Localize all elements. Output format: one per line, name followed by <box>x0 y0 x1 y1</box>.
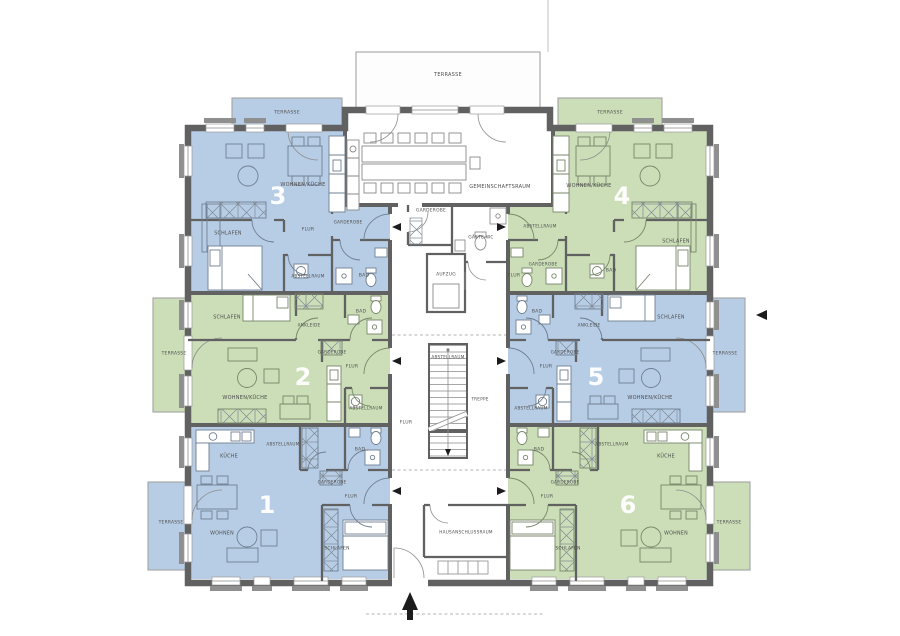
apartment-number: 4 <box>614 182 631 210</box>
room-label: FLUR <box>345 494 358 500</box>
room-label: FLUR <box>541 494 554 500</box>
room-label: SCHLAFEN <box>662 239 690 245</box>
floor-plan-page: 123456 TERRASSETERRASSETERRASSETERRASSET… <box>0 0 900 636</box>
room-label: BAD <box>359 273 370 279</box>
entrance-opening <box>392 577 428 588</box>
room-label: BAD <box>356 309 367 315</box>
room-label: WOHNEN/KÜCHE <box>222 394 267 401</box>
room-label: GARDEROBE <box>334 220 363 225</box>
room-label: GARDEROBE <box>416 208 446 214</box>
staircase <box>429 344 467 458</box>
room-label: TERRASSE <box>433 72 462 78</box>
room-label: BAD <box>355 447 366 453</box>
room-label: GARDEROBE <box>551 480 580 485</box>
room-label: HAUSANSCHLUSSRAUM <box>439 530 493 535</box>
apartment-number: 1 <box>259 491 276 519</box>
room-label: TERRASSE <box>273 110 300 116</box>
room-label: WOHNEN <box>210 531 234 537</box>
room-label: ANKLEIDE <box>578 323 601 328</box>
room-label: TERRASSE <box>716 520 742 526</box>
apartment-number: 6 <box>620 491 637 519</box>
room-label: GARDEROBE <box>318 350 347 355</box>
terrace-top-center <box>356 52 540 110</box>
room-label: FLUR <box>540 364 553 370</box>
room-label: FLUR <box>302 227 315 233</box>
floor-plan-drawing: 123456 TERRASSETERRASSETERRASSETERRASSET… <box>0 0 900 636</box>
apartment-number: 5 <box>588 363 605 391</box>
room-label: FLUR <box>400 420 413 426</box>
room-label: ABSTELLRAUM <box>349 406 382 411</box>
room-label: WOHNEN <box>664 531 688 537</box>
room-label: WOHNEN/KÜCHE <box>627 394 672 401</box>
mailboxes <box>438 561 488 574</box>
room-label: KÜCHE <box>657 453 675 460</box>
room-label: TERRASSE <box>161 351 187 357</box>
room-label: KÜCHE <box>220 453 238 460</box>
room-label: WOHNEN/KÜCHE <box>280 181 325 188</box>
apartment-number: 2 <box>295 363 312 391</box>
room-label: ABSTELLRAUM <box>523 224 556 229</box>
room-label: SCHLAFEN <box>555 546 580 552</box>
room-label: GARDEROBE <box>318 480 347 485</box>
room-label: SCHLAFEN <box>213 315 241 321</box>
room-label: BAD <box>606 268 617 274</box>
room-label: ABSTELLRAUM <box>595 442 628 447</box>
elevator <box>427 254 465 312</box>
room-label: WOHNEN/KÜCHE <box>566 182 611 189</box>
room-label: ABSTELLRAUM <box>514 406 547 411</box>
room-label: ABSTELLRAUM <box>431 355 464 360</box>
room-label: TERRASSE <box>712 351 738 357</box>
room-label: ABSTELLRAUM <box>291 274 324 279</box>
room-label: TREPPE <box>470 397 488 402</box>
room-label: GÄSTE-WC <box>468 234 493 241</box>
room-label: SCHLAFEN <box>324 546 349 552</box>
room-label: TERRASSE <box>596 110 623 116</box>
room-label: GARDEROBE <box>529 262 558 267</box>
room-label: SCHLAFEN <box>214 231 242 237</box>
room-label: ANKLEIDE <box>298 323 321 328</box>
room-label: BAD <box>534 447 545 453</box>
room-label: AUFZUG <box>436 272 456 278</box>
common-kitchenette <box>347 140 359 210</box>
room-label: SCHLAFEN <box>657 315 685 321</box>
room-label: FLUR <box>508 273 521 279</box>
room-label: TERRASSE <box>158 520 184 526</box>
room-label: FLUR <box>346 364 359 370</box>
room-label: GARDEROBE <box>551 350 580 355</box>
room-label: GEMEINSCHAFTSRAUM <box>469 184 531 190</box>
room-label: ABSTELLRAUM <box>266 442 299 447</box>
room-label: BAD <box>532 309 543 315</box>
